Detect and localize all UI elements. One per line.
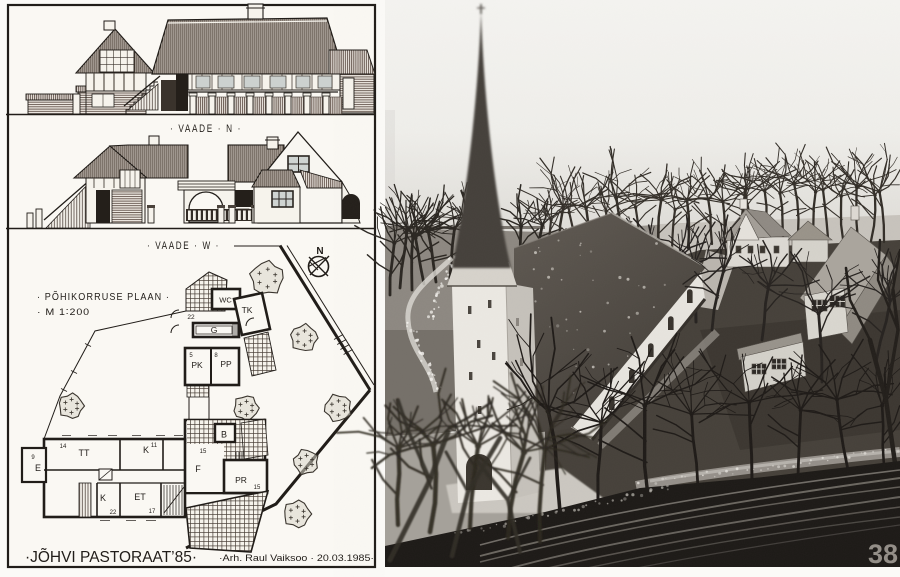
- svg-text:15: 15: [254, 485, 261, 491]
- svg-text:· VAADE · N ·: · VAADE · N ·: [170, 123, 242, 135]
- svg-text:G: G: [211, 325, 218, 335]
- svg-text:ET: ET: [134, 492, 146, 502]
- svg-text:N: N: [316, 246, 323, 257]
- svg-text:TK: TK: [242, 305, 253, 315]
- svg-text:PR: PR: [235, 475, 247, 485]
- svg-text:22: 22: [110, 510, 117, 516]
- svg-text:E: E: [35, 463, 41, 473]
- svg-text:11: 11: [151, 443, 158, 449]
- svg-text:F: F: [195, 464, 201, 474]
- svg-text:22: 22: [187, 314, 195, 321]
- svg-text:K: K: [100, 493, 106, 503]
- svg-text:17: 17: [149, 509, 156, 515]
- svg-text:· PÕHIKORRUSE PLAAN ·: · PÕHIKORRUSE PLAAN ·: [37, 290, 170, 303]
- svg-text:TT: TT: [79, 448, 90, 458]
- svg-text:15: 15: [200, 449, 207, 455]
- svg-text:· VAADE · W ·: · VAADE · W ·: [147, 240, 220, 252]
- svg-text:PP: PP: [220, 359, 232, 369]
- svg-text:·Arh. Raul Vaiksoo · 20.03.198: ·Arh. Raul Vaiksoo · 20.03.1985·: [219, 553, 374, 564]
- svg-text:· M 1∶200: · M 1∶200: [37, 307, 90, 318]
- svg-text:·JÕHVI PASTORAAT’85·: ·JÕHVI PASTORAAT’85·: [25, 549, 197, 566]
- svg-text:14: 14: [60, 444, 67, 450]
- svg-text:WC: WC: [219, 296, 232, 305]
- svg-text:PK: PK: [191, 360, 203, 370]
- svg-text:B: B: [221, 430, 227, 440]
- svg-text:K: K: [143, 445, 149, 455]
